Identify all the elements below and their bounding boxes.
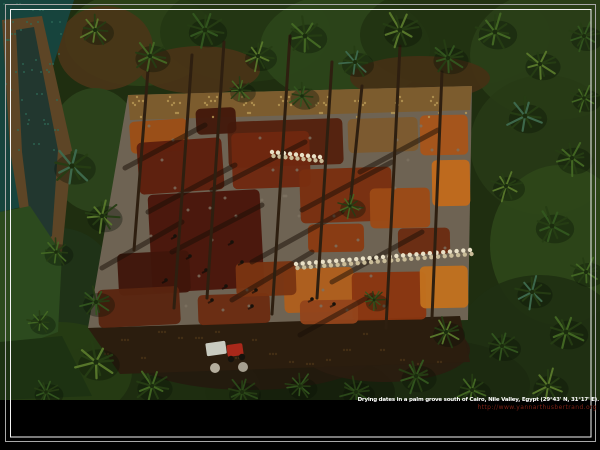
photo-caption: Drying dates in a palm grove south of Ca…	[358, 397, 599, 404]
photo-credit-url: http://www.yannarthusbertrand.org	[477, 404, 597, 411]
aerial-photo-svg	[0, 0, 600, 450]
photo-frame: Drying dates in a palm grove south of Ca…	[0, 0, 600, 450]
